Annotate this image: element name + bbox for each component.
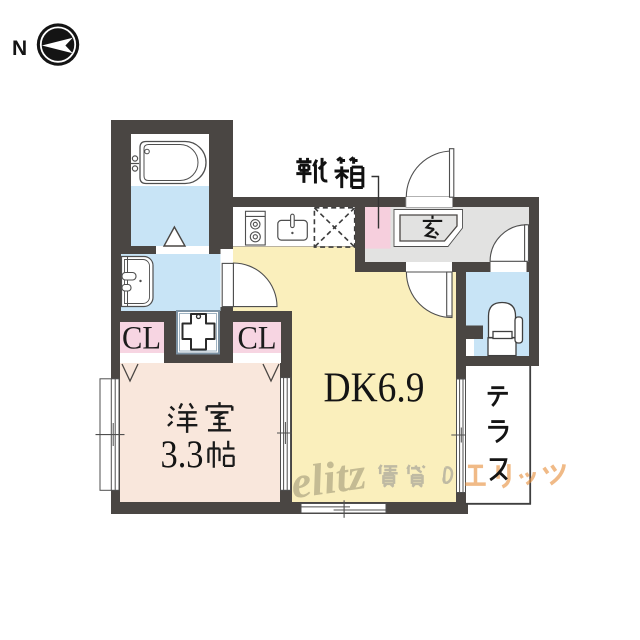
svg-text:elitz: elitz — [288, 448, 370, 508]
svg-text:DK6.9: DK6.9 — [324, 366, 425, 412]
svg-text:CL: CL — [238, 321, 277, 357]
svg-text:3.3: 3.3 — [161, 433, 204, 476]
svg-text:N: N — [12, 37, 27, 60]
svg-text:CL: CL — [122, 321, 161, 357]
